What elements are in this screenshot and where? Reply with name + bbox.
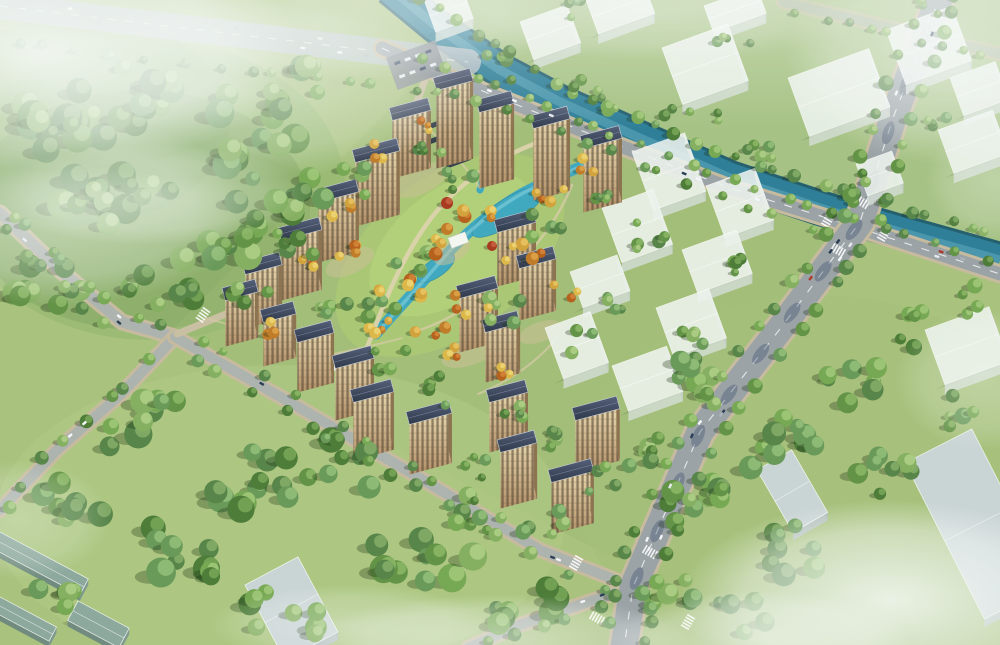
tree-highlight xyxy=(340,451,348,459)
tree-highlight xyxy=(412,462,418,468)
tree-highlight xyxy=(843,209,851,217)
tree-highlight xyxy=(845,394,857,406)
tree-highlight xyxy=(258,473,268,483)
tree-highlight xyxy=(473,497,478,502)
tree-highlight xyxy=(335,433,344,442)
tree-highlight xyxy=(36,580,47,591)
tree-highlight xyxy=(427,384,434,391)
tree-highlight xyxy=(640,586,649,595)
tree-highlight xyxy=(213,482,226,495)
tree-highlight xyxy=(734,174,740,180)
tree-highlight xyxy=(464,461,470,467)
tree-highlight xyxy=(678,352,690,364)
tree-highlight xyxy=(886,194,893,201)
tower-windows xyxy=(519,259,556,321)
tree-highlight xyxy=(614,480,621,487)
tree-highlight xyxy=(976,301,983,308)
tree-highlight xyxy=(753,186,758,191)
tree-highlight xyxy=(773,304,780,311)
tree-highlight xyxy=(721,372,727,378)
tree-highlight xyxy=(395,258,401,264)
tree-highlight xyxy=(734,269,738,273)
tree-highlight xyxy=(812,437,823,448)
tree-highlight xyxy=(563,186,568,191)
tree-highlight xyxy=(872,456,881,465)
tree-highlight xyxy=(760,162,767,169)
tree-highlight xyxy=(312,423,319,430)
tree-highlight xyxy=(447,350,453,356)
tree-highlight xyxy=(753,140,759,146)
tree-highlight xyxy=(591,329,597,335)
tree-highlight xyxy=(853,214,859,220)
tree-highlight xyxy=(389,469,397,477)
tree-highlight xyxy=(471,170,478,177)
tree-highlight xyxy=(858,245,866,253)
tree-highlight xyxy=(484,455,490,461)
tree-highlight xyxy=(500,363,505,368)
tree-highlight xyxy=(640,140,645,145)
tree-highlight xyxy=(676,525,683,532)
tree-highlight xyxy=(663,232,669,238)
tree-highlight xyxy=(209,568,219,578)
tree-highlight xyxy=(705,169,710,174)
tower-windows xyxy=(297,333,334,393)
tree-highlight xyxy=(283,448,296,461)
tree-highlight xyxy=(449,566,465,582)
tree-highlight xyxy=(454,291,460,297)
tree-highlight xyxy=(670,481,683,494)
tree-highlight xyxy=(588,488,593,493)
tree-highlight xyxy=(861,169,867,175)
tree-highlight xyxy=(920,305,929,314)
tree-highlight xyxy=(206,540,217,551)
tree-highlight xyxy=(531,253,538,260)
tree-highlight xyxy=(545,578,558,591)
tree-highlight xyxy=(173,392,185,404)
tree-highlight xyxy=(649,454,658,463)
tree-highlight xyxy=(911,207,918,214)
tree-highlight xyxy=(855,464,866,475)
tree-highlight xyxy=(844,261,852,269)
tree-highlight xyxy=(111,391,118,398)
tree-highlight xyxy=(789,194,795,200)
tree-highlight xyxy=(903,229,908,234)
tree-highlight xyxy=(579,166,584,171)
tree-highlight xyxy=(169,536,181,548)
tree-highlight xyxy=(644,163,650,169)
tree-highlight xyxy=(66,583,77,594)
tree-highlight xyxy=(614,304,620,310)
tree-highlight xyxy=(494,529,502,537)
tree-highlight xyxy=(714,146,721,153)
tree-highlight xyxy=(446,198,453,205)
tree-highlight xyxy=(159,320,165,326)
tree-highlight xyxy=(655,167,660,172)
tree-highlight xyxy=(613,590,620,597)
tree-highlight xyxy=(826,367,836,377)
tree-highlight xyxy=(636,219,641,224)
tree-highlight xyxy=(345,298,353,306)
tree-highlight xyxy=(796,420,804,428)
tree-highlight xyxy=(374,347,379,352)
tree-highlight xyxy=(655,575,663,583)
tree-highlight xyxy=(725,422,733,430)
tree-highlight xyxy=(722,192,727,197)
tree-highlight xyxy=(677,438,684,445)
tree-highlight xyxy=(772,444,784,456)
tree-highlight xyxy=(473,454,478,459)
tree-highlight xyxy=(462,205,469,212)
tree-highlight xyxy=(453,343,459,349)
tree-highlight xyxy=(418,529,432,543)
tree-highlight xyxy=(586,138,592,144)
tree-highlight xyxy=(366,310,374,318)
tree-highlight xyxy=(685,179,691,185)
tree-highlight xyxy=(779,349,787,357)
tree-highlight xyxy=(213,365,221,373)
tree-highlight xyxy=(961,290,967,296)
tree-highlight xyxy=(196,355,203,362)
tree-highlight xyxy=(549,442,555,448)
tree-highlight xyxy=(825,180,832,187)
tree-highlight xyxy=(138,314,144,320)
tree-highlight xyxy=(63,599,72,608)
tree-highlight xyxy=(814,304,822,312)
tree-highlight xyxy=(414,479,422,487)
tree-highlight xyxy=(575,325,582,332)
tree-highlight xyxy=(896,160,904,168)
tree-highlight xyxy=(673,513,683,523)
tree-highlight xyxy=(953,247,958,252)
tree-highlight xyxy=(899,334,905,340)
tree-highlight xyxy=(768,142,775,149)
tree-highlight xyxy=(610,145,616,151)
tree-highlight xyxy=(236,282,244,290)
tree-highlight xyxy=(251,388,257,394)
tree-highlight xyxy=(746,145,752,151)
tree-highlight xyxy=(688,493,696,501)
tree-highlight xyxy=(276,229,282,235)
tree-highlight xyxy=(529,547,537,555)
tree-highlight xyxy=(451,175,456,180)
tree-highlight xyxy=(430,477,436,483)
tree-highlight xyxy=(102,317,109,324)
tree-highlight xyxy=(551,530,557,536)
tree-highlight xyxy=(321,189,333,201)
tree-highlight xyxy=(549,196,555,202)
tree-highlight xyxy=(481,474,485,478)
tree-highlight xyxy=(311,248,319,256)
tree-highlight xyxy=(540,249,545,254)
tree-highlight xyxy=(665,585,677,597)
tree-highlight xyxy=(535,189,540,194)
tree-highlight xyxy=(295,390,301,396)
site-plan-svg xyxy=(0,0,1000,645)
tree-highlight xyxy=(934,239,939,244)
tree-highlight xyxy=(365,437,370,442)
tree-highlight xyxy=(519,410,524,415)
tree-highlight xyxy=(665,459,671,465)
tree-highlight xyxy=(521,238,528,245)
tree-highlight xyxy=(263,371,269,377)
tree-highlight xyxy=(272,328,278,334)
tree-highlight xyxy=(864,177,870,183)
tree-highlight xyxy=(269,317,275,323)
tree-highlight xyxy=(712,397,720,405)
tree-highlight xyxy=(250,445,260,455)
tree-highlight xyxy=(61,436,67,442)
tower-windows xyxy=(500,443,537,509)
tree-highlight xyxy=(388,363,395,370)
tree-highlight xyxy=(870,380,882,392)
tree-highlight xyxy=(771,423,784,436)
tree-highlight xyxy=(576,288,580,292)
tree-highlight xyxy=(285,488,297,500)
tree-highlight xyxy=(440,148,445,153)
tree-highlight xyxy=(331,211,337,217)
tree-highlight xyxy=(364,190,370,196)
tree-highlight xyxy=(176,285,186,295)
tree-highlight xyxy=(518,401,525,408)
tree-highlight xyxy=(379,287,385,293)
tree-highlight xyxy=(553,281,558,286)
tree-highlight xyxy=(189,283,198,292)
tree-highlight xyxy=(681,326,688,333)
tree-highlight xyxy=(531,209,538,216)
tree-highlight xyxy=(668,152,673,157)
tree-highlight xyxy=(691,330,698,337)
tree-highlight xyxy=(381,326,385,330)
tree-highlight xyxy=(451,186,456,191)
tree-highlight xyxy=(770,154,775,159)
tree-highlight xyxy=(693,160,699,166)
tree-highlight xyxy=(40,452,48,460)
tree-highlight xyxy=(380,296,387,303)
tree-highlight xyxy=(460,504,470,514)
tree-highlight xyxy=(771,165,776,170)
tree-highlight xyxy=(605,194,610,199)
tree-highlight xyxy=(407,280,414,287)
tree-highlight xyxy=(435,332,440,337)
tree-highlight xyxy=(923,210,929,216)
tree-highlight xyxy=(444,401,449,406)
tree-highlight xyxy=(615,576,621,582)
tree-highlight xyxy=(650,446,656,452)
tree-highlight xyxy=(561,517,569,525)
tree-highlight xyxy=(488,292,496,300)
tree-highlight xyxy=(489,314,496,321)
tree-highlight xyxy=(581,154,587,160)
tree-highlight xyxy=(420,289,426,295)
tree-highlight xyxy=(651,489,657,495)
tree-highlight xyxy=(382,561,393,572)
tree-highlight xyxy=(158,559,174,575)
tree-highlight xyxy=(664,548,672,556)
tree-highlight xyxy=(973,279,982,288)
tree-highlight xyxy=(121,383,128,390)
tree-highlight xyxy=(156,298,164,306)
tree-highlight xyxy=(627,459,635,467)
tree-highlight xyxy=(478,511,487,520)
tree-highlight xyxy=(705,388,713,396)
tree-highlight xyxy=(419,265,425,271)
tree-highlight xyxy=(781,410,791,420)
tree-highlight xyxy=(160,395,169,404)
tree-highlight xyxy=(592,168,597,173)
tree-highlight xyxy=(604,462,610,468)
tree-highlight xyxy=(324,434,330,440)
tree-highlight xyxy=(494,300,500,306)
tree-highlight xyxy=(512,243,516,247)
tree-highlight xyxy=(150,517,164,531)
tree-highlight xyxy=(518,295,526,303)
tree-highlight xyxy=(440,239,446,245)
tree-highlight xyxy=(286,406,292,412)
tree-highlight xyxy=(604,586,610,592)
tree-highlight xyxy=(222,348,226,352)
tree-highlight xyxy=(830,208,836,214)
tree-highlight xyxy=(848,189,856,197)
tree-highlight xyxy=(423,572,435,584)
aerial-masterplan-rendering xyxy=(0,0,1000,645)
tree-highlight xyxy=(633,527,639,533)
tree-highlight xyxy=(491,242,497,248)
tree-highlight xyxy=(296,231,305,240)
tree-highlight xyxy=(885,224,891,230)
tree-highlight xyxy=(636,245,641,250)
tree-highlight xyxy=(710,448,716,454)
tree-highlight xyxy=(824,228,832,236)
fog-patch xyxy=(0,145,310,245)
tree-highlight xyxy=(837,277,843,283)
tree-highlight xyxy=(567,570,573,576)
tree-highlight xyxy=(689,414,697,422)
tree-highlight xyxy=(342,422,348,428)
tree-highlight xyxy=(444,322,451,329)
tree-highlight xyxy=(500,513,506,519)
tree-highlight xyxy=(747,205,752,210)
tree-highlight xyxy=(759,151,766,158)
tree-highlight xyxy=(521,525,530,534)
tree-highlight xyxy=(266,287,273,294)
tree-highlight xyxy=(374,328,381,335)
tree-highlight xyxy=(606,296,612,302)
tree-highlight xyxy=(801,323,809,331)
tree-highlight xyxy=(243,296,251,304)
tree-highlight xyxy=(512,317,520,325)
tree-highlight xyxy=(500,371,506,377)
tree-highlight xyxy=(456,353,460,357)
tree-highlight xyxy=(414,327,420,333)
tree-highlight xyxy=(353,241,359,247)
tree-highlight xyxy=(737,346,744,353)
tree-highlight xyxy=(470,544,486,560)
tree-highlight xyxy=(559,223,566,230)
tree-highlight xyxy=(438,371,444,377)
tree-highlight xyxy=(328,301,336,309)
tree-highlight xyxy=(446,224,453,231)
tree-highlight xyxy=(349,199,354,204)
tree-highlight xyxy=(504,409,509,414)
tree-highlight xyxy=(880,215,887,222)
tree-highlight xyxy=(148,354,155,361)
tree-highlight xyxy=(355,248,360,253)
tree-highlight xyxy=(656,432,663,439)
tree-highlight xyxy=(374,535,387,548)
tree-highlight xyxy=(623,546,631,554)
tree-highlight xyxy=(737,402,744,409)
tree-highlight xyxy=(891,462,900,471)
tree-highlight xyxy=(790,275,798,283)
tree-highlight xyxy=(608,132,613,137)
tree-highlight xyxy=(735,257,742,264)
tree-highlight xyxy=(806,263,812,269)
tree-highlight xyxy=(570,294,575,299)
tree-highlight xyxy=(792,170,800,178)
tree-highlight xyxy=(404,346,410,352)
tree-highlight xyxy=(109,419,118,428)
tree-highlight xyxy=(770,209,776,215)
tree-highlight xyxy=(394,303,402,311)
tree-highlight xyxy=(720,483,728,491)
tree-highlight xyxy=(858,150,866,158)
tree-highlight xyxy=(806,201,812,207)
tree-highlight xyxy=(338,252,343,257)
tree-highlight xyxy=(446,167,452,173)
tree-highlight xyxy=(325,308,331,314)
tree-highlight xyxy=(367,456,373,462)
tree-highlight xyxy=(312,262,318,268)
tree-highlight xyxy=(620,305,625,310)
tree-highlight xyxy=(367,298,374,305)
tree-highlight xyxy=(570,347,577,354)
tree-highlight xyxy=(812,226,817,231)
tree-highlight xyxy=(141,413,152,424)
tree-highlight xyxy=(695,138,702,145)
tree-highlight xyxy=(326,466,336,476)
tree-highlight xyxy=(202,337,208,343)
tree-highlight xyxy=(434,248,442,256)
tree-highlight xyxy=(879,488,886,495)
tree-highlight xyxy=(455,305,460,310)
tree-highlight xyxy=(238,497,253,512)
tree-highlight xyxy=(490,214,495,219)
tree-highlight xyxy=(448,500,455,507)
tree-highlight xyxy=(366,477,379,490)
tree-highlight xyxy=(505,256,510,261)
tree-highlight xyxy=(987,256,993,262)
tree-highlight xyxy=(697,473,705,481)
tree-highlight xyxy=(465,310,471,316)
tree-highlight xyxy=(551,426,557,432)
tree-highlight xyxy=(913,311,920,318)
tree-highlight xyxy=(598,193,602,197)
tree-highlight xyxy=(758,321,764,327)
tree-highlight xyxy=(557,505,565,513)
tree-highlight xyxy=(387,317,391,321)
tree-highlight xyxy=(454,515,464,525)
tree-highlight xyxy=(904,454,915,465)
tree-highlight xyxy=(433,545,445,557)
tree-highlight xyxy=(487,304,492,309)
tree-highlight xyxy=(530,231,537,238)
tree-highlight xyxy=(874,358,886,370)
tree-highlight xyxy=(701,338,708,345)
tree-highlight xyxy=(489,206,495,212)
tree-highlight xyxy=(735,153,739,157)
tree-highlight xyxy=(753,379,761,387)
tree-highlight xyxy=(508,370,513,375)
